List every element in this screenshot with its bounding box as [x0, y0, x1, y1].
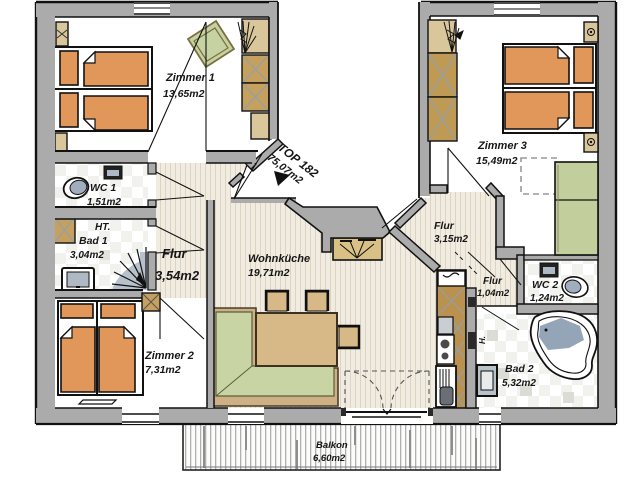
svg-text:Wohnküche: Wohnküche — [248, 253, 310, 265]
svg-text:7,31m2: 7,31m2 — [145, 364, 181, 376]
svg-text:WC 2: WC 2 — [532, 279, 558, 291]
svg-text:Bad 1: Bad 1 — [79, 235, 108, 247]
svg-text:6,60m2: 6,60m2 — [313, 453, 346, 464]
svg-text:3,04m2: 3,04m2 — [70, 250, 104, 261]
svg-text:15,49m2: 15,49m2 — [476, 155, 518, 167]
svg-text:WC 1: WC 1 — [90, 182, 116, 194]
svg-text:Flur: Flur — [434, 220, 455, 232]
svg-text:13,65m2: 13,65m2 — [163, 88, 205, 100]
svg-text:Flur: Flur — [483, 276, 503, 287]
svg-text:Bad 2: Bad 2 — [505, 363, 534, 375]
svg-text:5,32m2: 5,32m2 — [502, 378, 536, 389]
svg-text:HT.: HT. — [95, 222, 110, 233]
svg-text:3,54m2: 3,54m2 — [155, 268, 200, 283]
svg-text:Zimmer 3: Zimmer 3 — [477, 140, 527, 152]
svg-text:Zimmer 1: Zimmer 1 — [165, 72, 215, 84]
svg-text:H.: H. — [478, 336, 487, 344]
svg-text:Balkon: Balkon — [316, 440, 348, 451]
svg-text:19,71m2: 19,71m2 — [248, 267, 290, 279]
svg-text:Zimmer 2: Zimmer 2 — [144, 350, 194, 362]
svg-text:1,04m2: 1,04m2 — [477, 288, 510, 299]
svg-text:1,24m2: 1,24m2 — [530, 293, 564, 304]
svg-text:3,15m2: 3,15m2 — [434, 234, 468, 245]
svg-text:Flur: Flur — [162, 246, 187, 261]
